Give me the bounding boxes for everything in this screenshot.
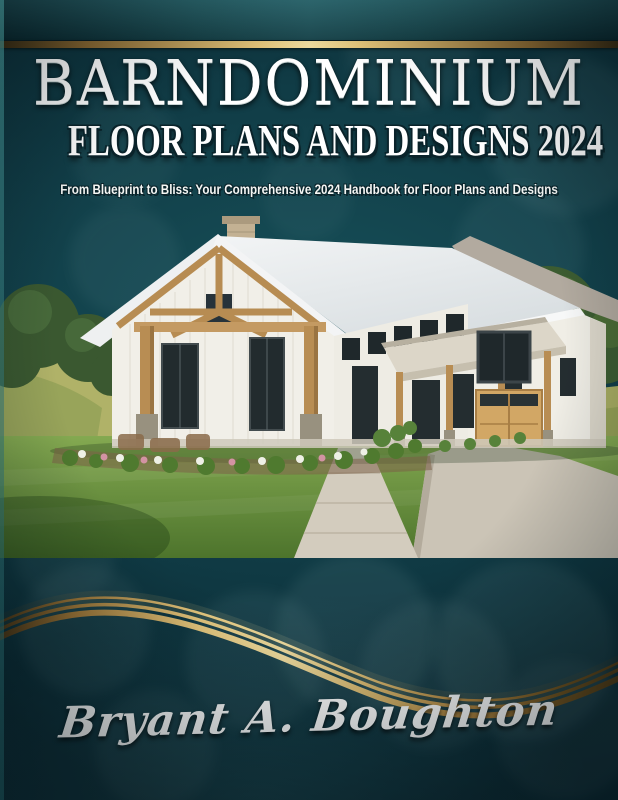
book-title: BARNDOMINIUM bbox=[0, 50, 618, 118]
house bbox=[50, 216, 618, 464]
series-title: FLOOR PLANS AND DESIGNS 2024 bbox=[68, 118, 550, 164]
book-cover: BARNDOMINIUM FLOOR PLANS AND DESIGNS 202… bbox=[0, 0, 618, 800]
house-illustration bbox=[0, 208, 618, 558]
spine-edge-highlight bbox=[0, 0, 4, 800]
top-accent-band bbox=[0, 0, 618, 42]
tagline: From Blueprint to Bliss: Your Comprehens… bbox=[43, 182, 574, 197]
